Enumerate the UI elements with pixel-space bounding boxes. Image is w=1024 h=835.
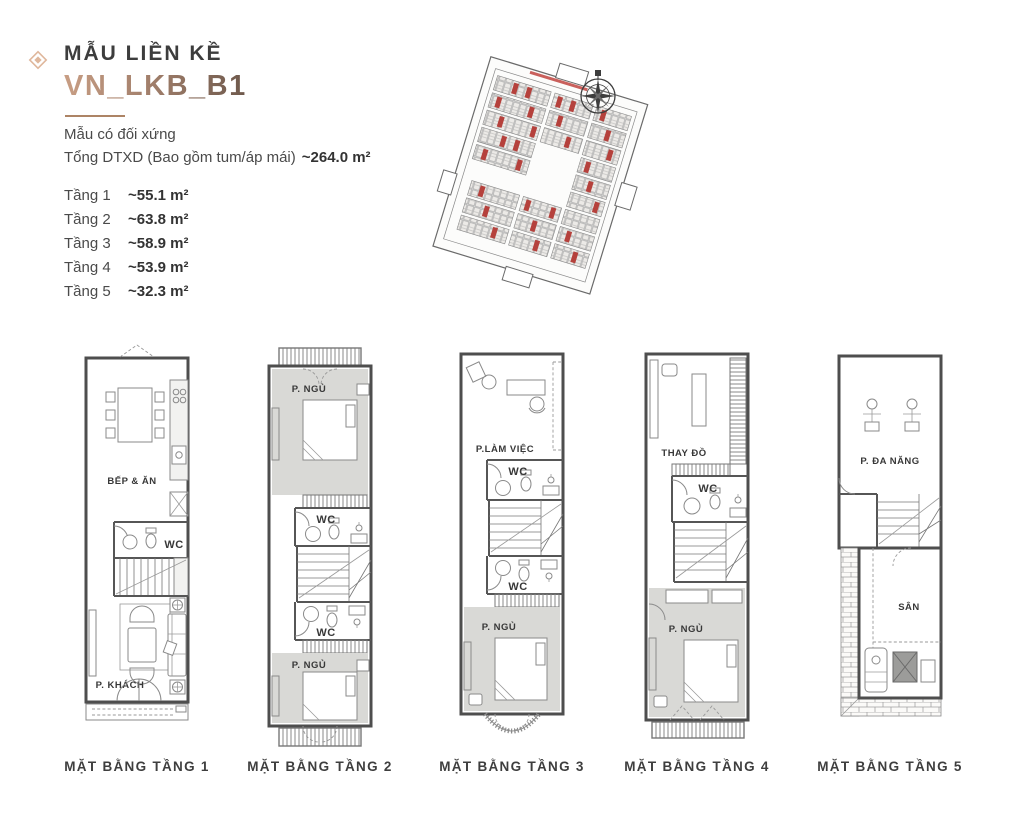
room-label: BẾP & ĂN — [107, 476, 156, 487]
title-divider — [65, 115, 125, 117]
site-master-plan — [428, 48, 668, 300]
room-label: WC — [316, 627, 335, 639]
floor-area-list: Tầng 1~55.1 m² Tầng 2~63.8 m² Tầng 3~58.… — [64, 183, 188, 303]
room-label: WC — [164, 539, 183, 551]
site-blocks — [428, 48, 665, 300]
wardrobe-icon — [303, 495, 367, 508]
wardrobe-icon — [495, 594, 559, 607]
bed-icon — [684, 640, 738, 702]
balcony-bottom — [279, 728, 361, 746]
plan-caption: MẶT BẰNG TẦNG 4 — [617, 759, 777, 774]
bed-icon — [303, 672, 357, 720]
island-table-icon — [692, 374, 706, 426]
bed-icon — [303, 400, 357, 460]
side-table-icon — [170, 680, 185, 694]
room-label: P. NGỦ — [482, 621, 517, 633]
plan-caption: MẶT BẰNG TẦNG 2 — [240, 759, 400, 774]
floor-plan-3: P.LÀM VIỆC WC — [432, 342, 592, 774]
total-area-line: Tổng DTXD (Bao gồm tum/áp mái)~264.0 m² — [64, 149, 371, 166]
floor-area-row: Tầng 5~32.3 m² — [64, 279, 188, 303]
floor-plan-1: BẾP & ĂN WC — [57, 342, 217, 774]
wardrobe-icon — [730, 358, 746, 464]
floor-area-row: Tầng 3~58.9 m² — [64, 231, 188, 255]
total-area-value: ~264.0 m² — [302, 149, 371, 166]
dining-table-icon — [106, 388, 164, 442]
room-label: WC — [698, 483, 717, 495]
ac-unit-icon — [893, 652, 917, 682]
model-code: VN_LKB_B1 — [64, 70, 247, 103]
bed-icon — [495, 638, 547, 700]
toilet-icon — [327, 606, 337, 627]
toilet-icon — [146, 528, 156, 548]
sink-icon — [684, 498, 700, 514]
room-label: WC — [508, 581, 527, 593]
porch — [86, 704, 188, 720]
terrace: SÂN — [841, 548, 941, 716]
wardrobe-icon — [303, 640, 367, 653]
room-label: WC — [508, 466, 527, 478]
side-table-icon — [170, 598, 185, 612]
coffee-table-icon — [128, 628, 156, 662]
floor-value: ~55.1 m² — [128, 187, 188, 204]
floor-label: Tầng 2 — [64, 211, 128, 228]
floor-value: ~63.8 m² — [128, 211, 188, 228]
floor-plan-2-drawing: P. NGỦ — [245, 342, 395, 752]
room-label: P. NGỦ — [292, 659, 327, 671]
floor-label: Tầng 3 — [64, 235, 128, 252]
floor-area-row: Tầng 2~63.8 m² — [64, 207, 188, 231]
armchair-icon — [469, 694, 482, 705]
total-area-label: Tổng DTXD (Bao gồm tum/áp mái) — [64, 149, 296, 166]
floor-label: Tầng 4 — [64, 259, 128, 276]
floor-plan-4-drawing: THAY ĐỒ WC — [622, 342, 772, 752]
cabinet-icon — [712, 590, 742, 603]
chair-icon — [662, 364, 677, 376]
room-label: WC — [316, 514, 335, 526]
room-label: P.LÀM VIỆC — [476, 443, 534, 455]
wardrobe-icon — [672, 464, 730, 476]
diamond-icon — [28, 50, 48, 70]
floor-plan-2: P. NGỦ — [240, 342, 400, 774]
balcony-curved — [485, 714, 539, 731]
water-tank-icon — [865, 648, 887, 692]
room-label: P. NGỦ — [669, 623, 704, 635]
symmetry-note: Mẫu có đối xứng — [64, 126, 176, 143]
outer-wall — [839, 356, 941, 548]
floor-plan-3-drawing: P.LÀM VIỆC WC — [437, 342, 587, 752]
cabinet-icon — [666, 590, 708, 603]
nightstand-icon — [357, 660, 369, 671]
sink-icon — [304, 607, 319, 622]
brick-border — [841, 548, 859, 716]
balcony-bottom — [652, 722, 744, 738]
room-label: SÂN — [898, 601, 920, 613]
sink-icon — [306, 527, 321, 542]
room-label: THAY ĐỒ — [661, 447, 706, 459]
toilet-icon — [519, 560, 529, 581]
plan-caption: MẶT BẰNG TẦNG 1 — [57, 759, 217, 774]
floor-value: ~58.9 m² — [128, 235, 188, 252]
floor-area-row: Tầng 4~53.9 m² — [64, 255, 188, 279]
sink-icon — [496, 481, 511, 496]
page-title: MẪU LIỀN KỀ — [64, 42, 223, 66]
floor-plan-4: THAY ĐỒ WC — [617, 342, 777, 774]
armchair-icon — [654, 696, 667, 707]
room-label: P. ĐA NĂNG — [860, 456, 919, 467]
brochure-page: MẪU LIỀN KỀ VN_LKB_B1 Mẫu có đối xứng Tổ… — [0, 0, 1024, 835]
floor-plan-5-drawing: P. ĐA NĂNG — [815, 342, 965, 752]
door-swing — [120, 345, 154, 357]
floor-plan-1-drawing: BẾP & ĂN WC — [62, 342, 212, 752]
kitchen-counter-icon — [170, 380, 188, 480]
floor-plan-5: P. ĐA NĂNG — [810, 342, 970, 774]
planter-icon — [921, 660, 935, 682]
nightstand-icon — [357, 384, 369, 395]
floor-label: Tầng 5 — [64, 283, 128, 300]
sink-icon — [496, 561, 511, 576]
room-label: P. NGỦ — [292, 383, 327, 395]
plan-caption: MẶT BẰNG TẦNG 3 — [432, 759, 592, 774]
floor-value: ~32.3 m² — [128, 283, 188, 300]
floor-label: Tầng 1 — [64, 187, 128, 204]
balcony-top — [279, 348, 361, 366]
sink-icon — [123, 535, 137, 549]
floor-value: ~53.9 m² — [128, 259, 188, 276]
plan-caption: MẶT BẰNG TẦNG 5 — [810, 759, 970, 774]
floor-area-row: Tầng 1~55.1 m² — [64, 183, 188, 207]
